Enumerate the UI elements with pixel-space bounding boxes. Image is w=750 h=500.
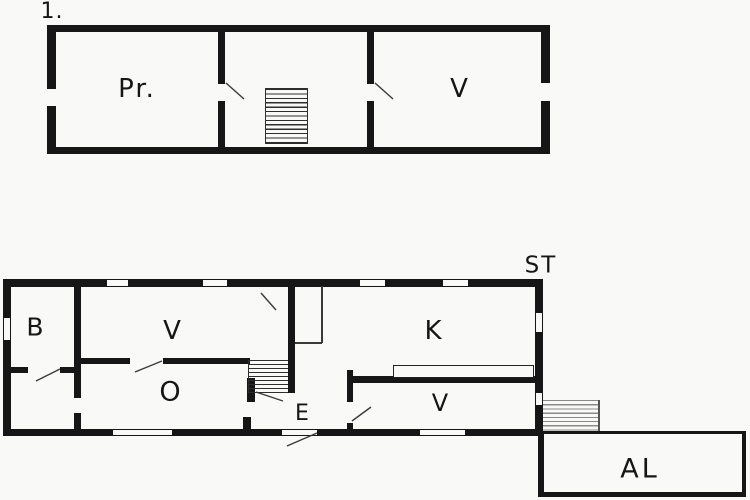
room-label-o: O	[159, 379, 182, 406]
staircase-upper	[265, 88, 308, 144]
stairs-label-st: ST	[525, 255, 558, 278]
door-swing-line	[352, 407, 371, 421]
wall-segment	[535, 279, 543, 436]
wall-segment	[347, 423, 353, 430]
window-opening	[107, 280, 128, 286]
wall-segment	[60, 367, 81, 373]
room-label-e: E	[295, 403, 311, 425]
door-swing-line	[256, 392, 283, 401]
window-opening	[420, 430, 465, 435]
door-opening	[536, 393, 542, 405]
window-opening	[536, 313, 542, 332]
wall-segment	[163, 358, 250, 364]
room-label-v-upper: V	[450, 76, 470, 102]
annex-label-al: AL	[620, 456, 660, 483]
floor-plan-canvas: 1. Pr. V ST	[0, 0, 750, 500]
wall-segment	[81, 358, 130, 364]
window-opening	[443, 280, 468, 286]
staircase-ground	[248, 360, 288, 393]
wall-segment	[3, 367, 28, 373]
wall-segment	[243, 417, 251, 430]
wall-segment	[347, 370, 353, 402]
room-label-k: K	[424, 318, 443, 344]
floor-number: 1.	[41, 1, 64, 23]
stair-landing-line	[295, 342, 322, 344]
door-swing-overlay	[0, 0, 750, 500]
door-swing-line	[375, 83, 393, 99]
wall-segment	[74, 286, 81, 398]
door-opening	[282, 430, 317, 435]
staircase-outside	[543, 400, 600, 431]
window-opening	[203, 280, 227, 286]
window-opening	[113, 430, 172, 435]
kitchen-counter	[393, 365, 534, 378]
room-label-b: B	[26, 315, 45, 340]
room-label-v-lower: V	[432, 391, 450, 415]
door-swing-line	[135, 361, 162, 372]
room-label-pr: Pr.	[118, 76, 156, 102]
wall-segment	[288, 286, 295, 393]
door-opening	[366, 84, 375, 101]
wall-segment	[47, 25, 550, 32]
window-opening	[46, 89, 57, 106]
window-opening	[4, 318, 10, 340]
window-opening	[360, 280, 385, 286]
room-label-v-ground: V	[163, 318, 183, 344]
wall-segment	[74, 413, 81, 430]
door-opening	[217, 84, 226, 101]
window-opening	[540, 83, 551, 101]
door-swing-line	[226, 83, 244, 99]
wall-segment	[3, 279, 11, 436]
door-swing-line	[261, 293, 276, 310]
stair-landing-line	[321, 286, 323, 343]
door-swing-line	[36, 369, 60, 381]
wall-segment	[47, 147, 550, 154]
